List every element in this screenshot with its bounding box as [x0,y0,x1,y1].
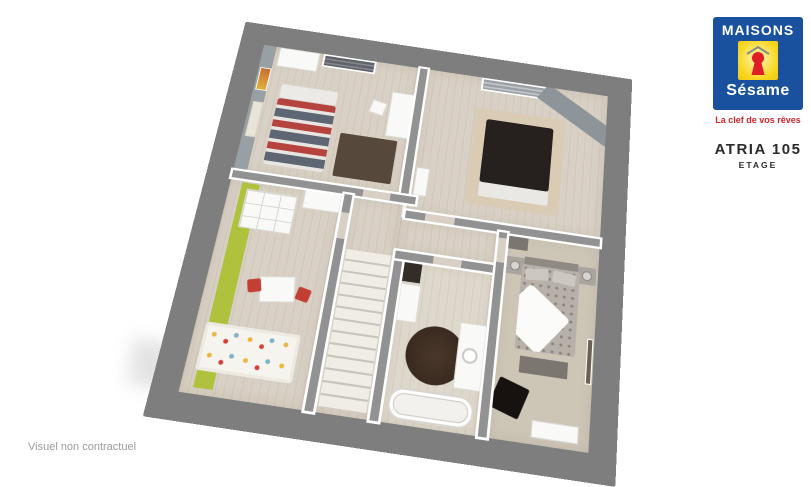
floor-plan [143,22,633,487]
keyhole-icon [752,61,765,75]
wall-picture [585,339,594,385]
red-chair [247,278,261,292]
black-chair [488,376,530,420]
side-cabinet [412,167,430,197]
pillow [525,268,548,281]
wardrobe [276,47,320,72]
brand-block: MAISONS Sésame La clef de vos rêves ATRI… [706,17,810,170]
foot-rug [519,356,568,380]
dresser [530,420,579,445]
bedroom1-floor [233,45,420,195]
dark-cabinet [401,261,422,283]
bedroom2-floor [406,69,608,239]
door-mat [508,235,529,251]
play-table [259,276,296,302]
red-chair [294,286,312,303]
plan-title: ATRIA 105 [706,141,810,158]
logo-maisons-text: MAISONS [713,22,803,38]
maisons-sesame-logo: MAISONS Sésame [713,17,803,110]
brand-tagline: La clef de vos rêves [706,115,810,125]
logo-emblem [738,41,778,80]
pillow [552,270,577,287]
bath-cabinet [395,283,421,324]
floor-plan-interior [178,45,607,453]
disclaimer-text: Visuel non contractuel [28,441,136,453]
cube-shelf [238,189,298,235]
window-blinds [322,54,377,74]
plan-level-label: ETAGE [706,160,810,170]
rug [332,133,397,185]
logo-sesame-text: Sésame [713,82,803,100]
desk-chair [368,99,387,116]
master-bed [514,264,580,358]
bed-dark-blanket [479,119,553,192]
white-throw [514,283,570,354]
bed-striped [263,98,336,173]
